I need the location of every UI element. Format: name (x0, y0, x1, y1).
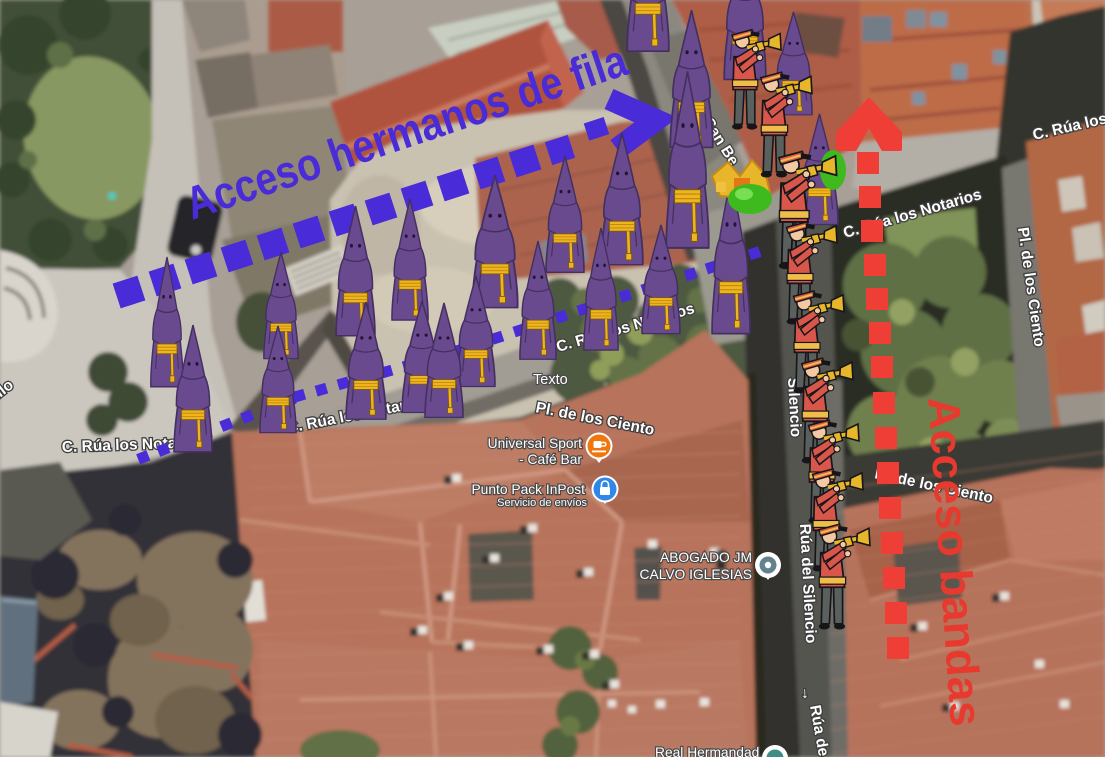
svg-text:Real Hermandad: Real Hermandad (655, 745, 759, 757)
svg-text:Servicio de envíos: Servicio de envíos (497, 497, 587, 509)
svg-text:Universal Sport: Universal Sport (488, 436, 582, 451)
svg-text:Punto Pack InPost: Punto Pack InPost (471, 482, 585, 497)
svg-text:ABOGADO JM: ABOGADO JM (660, 550, 752, 565)
svg-text:Texto: Texto (533, 372, 568, 388)
svg-text:→: → (798, 686, 816, 702)
svg-text:- Café Bar: - Café Bar (519, 452, 582, 467)
svg-text:CALVO IGLESIAS: CALVO IGLESIAS (640, 567, 752, 582)
